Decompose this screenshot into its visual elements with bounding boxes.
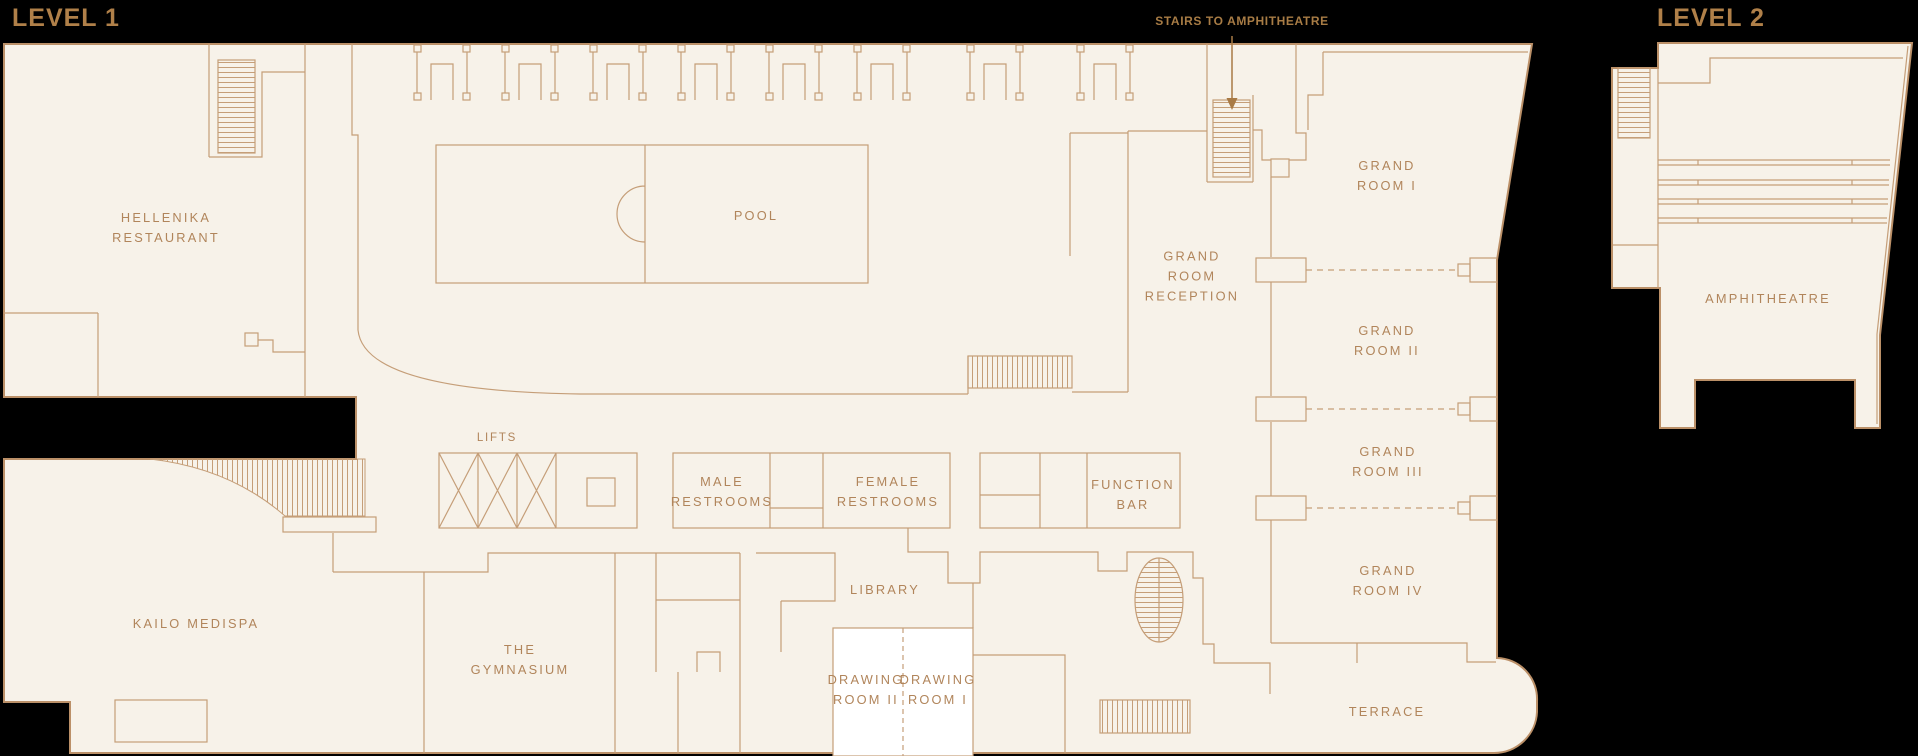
room-label-drawing-room-1: DRAWING ROOM I	[900, 670, 977, 710]
room-label-lifts: LIFTS	[477, 430, 517, 448]
room-label-pool: POOL	[734, 206, 778, 226]
room-label-male-restrooms: MALE RESTROOMS	[671, 472, 773, 512]
terrace-steps-icon	[1100, 700, 1190, 733]
room-label-female-restrooms: FEMALE RESTROOMS	[837, 472, 939, 512]
room-label-terrace: TERRACE	[1349, 702, 1426, 722]
room-label-drawing-room-2: DRAWING ROOM II	[828, 670, 905, 710]
stairs-to-amphitheatre-note: STAIRS TO AMPHITHEATRE	[1155, 14, 1328, 28]
courtyard-steps-icon	[968, 356, 1072, 388]
room-label-grand-room-4: GRAND ROOM IV	[1353, 561, 1424, 601]
restaurant-stairs-icon	[218, 60, 255, 153]
level1-plan	[4, 44, 1537, 756]
level2-plan	[1612, 43, 1912, 428]
floorplan-page: LEVEL 1 LEVEL 2 STAIRS TO AMPHITHEATRE H…	[0, 0, 1918, 756]
amphitheatre-stairs-icon	[1213, 100, 1250, 177]
oval-stair-icon	[1135, 558, 1183, 642]
room-label-grand-room-1: GRAND ROOM I	[1357, 156, 1417, 196]
room-label-amphitheatre: AMPHITHEATRE	[1705, 289, 1831, 309]
level2-footprint	[1612, 43, 1912, 428]
room-label-kailo-medispa: KAILO MEDISPA	[133, 614, 260, 634]
room-label-hellenika-restaurant: HELLENIKA RESTAURANT	[112, 208, 220, 248]
level1-title: LEVEL 1	[12, 4, 120, 33]
level2-title: LEVEL 2	[1657, 4, 1765, 33]
room-label-the-gymnasium: THE GYMNASIUM	[471, 640, 570, 680]
level2-stairs-icon	[1618, 68, 1650, 138]
room-label-library: LIBRARY	[850, 580, 920, 600]
room-label-function-bar: FUNCTION BAR	[1091, 475, 1175, 515]
floorplan-canvas	[0, 0, 1918, 756]
room-label-grand-room-reception: GRAND ROOM RECEPTION	[1145, 246, 1239, 305]
room-label-grand-room-3: GRAND ROOM III	[1352, 442, 1424, 482]
room-label-grand-room-2: GRAND ROOM II	[1354, 321, 1420, 361]
